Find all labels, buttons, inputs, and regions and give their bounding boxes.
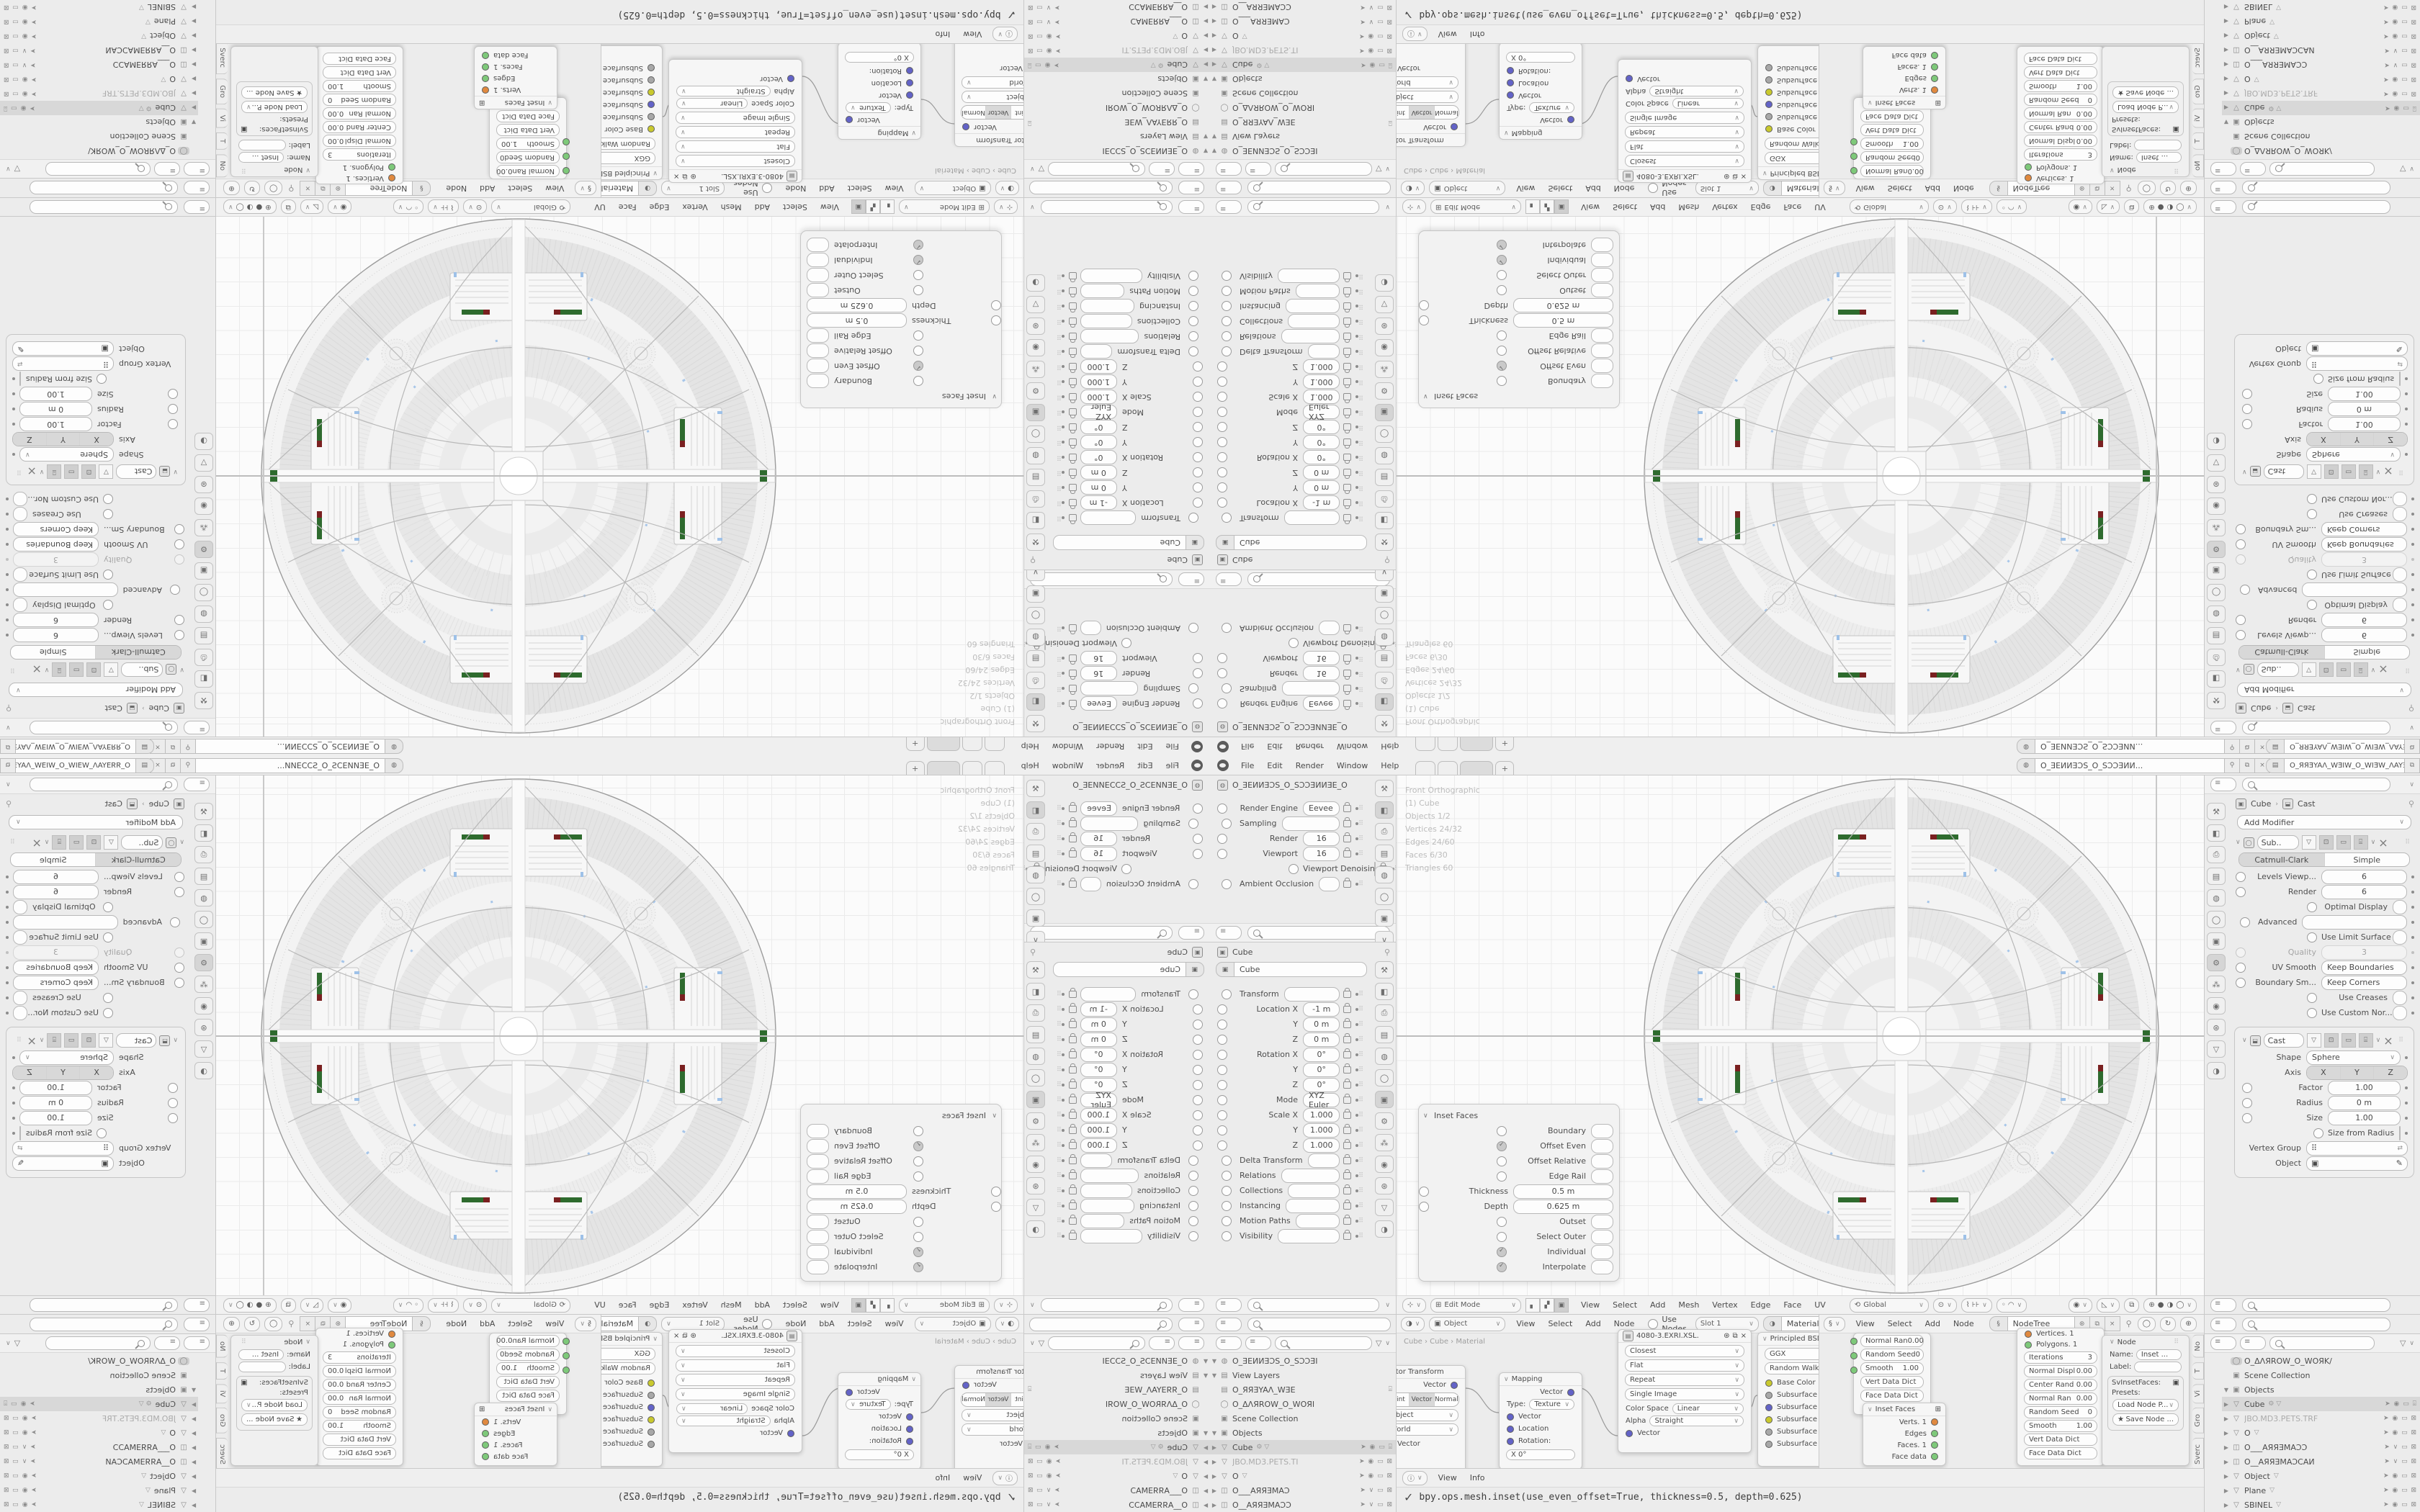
- modifier-name-field[interactable]: Cast: [116, 464, 156, 479]
- datablock-name[interactable]: Cube: [156, 1400, 176, 1409]
- outliner-row[interactable]: ▼ ▣ Objects: [0, 115, 198, 130]
- node-title[interactable]: ∨Inset Faces⊞: [1863, 96, 1945, 109]
- properties-tab-icon[interactable]: ◯: [1375, 426, 1394, 443]
- vector-transform-node[interactable]: Vector Transform Vector PointVectorNorma…: [1397, 44, 1466, 147]
- expand-caret-icon[interactable]: ▶: [189, 19, 198, 25]
- anim-dot-icon[interactable]: [1062, 290, 1065, 293]
- anim-dot-icon[interactable]: [1062, 1220, 1065, 1223]
- scene-filter-icon[interactable]: [1149, 1336, 1175, 1350]
- anim-dot-icon[interactable]: [6, 498, 9, 501]
- viewport-menu-item[interactable]: UV: [588, 202, 612, 212]
- expand-caret-icon[interactable]: ▶: [189, 48, 198, 54]
- topbar-menu-item[interactable]: Window: [1330, 761, 1374, 770]
- datablock-name[interactable]: O_ΔΛЯROW_O_WOЯK/: [2244, 147, 2332, 156]
- realtime-display-icon[interactable]: ▭: [2341, 464, 2356, 479]
- pin-icon[interactable]: ⚲: [2126, 184, 2132, 193]
- property-value[interactable]: 16: [1080, 847, 1117, 861]
- option-value[interactable]: [1591, 374, 1613, 389]
- sidebar-tab[interactable]: Sverc: [216, 44, 228, 74]
- property-row[interactable]: Z 0 m ⠿: [1054, 1032, 1210, 1046]
- axis-toggle-button[interactable]: Y: [2341, 433, 2375, 446]
- outliner-row[interactable]: ▶ ▽ JBO.MD3.PETS.TI ➤ ◉ ▭ ⊠: [1210, 1454, 1396, 1469]
- properties-tab-icon[interactable]: ⚙: [1375, 1112, 1394, 1130]
- visibility-icons[interactable]: ➤ ◉ ▭ ⊠: [1359, 1458, 1393, 1465]
- outliner-row[interactable]: ▼ ▣ Objects: [1210, 1426, 1396, 1440]
- vertex-group-field[interactable]: ⠿⇄: [12, 1141, 114, 1156]
- realtime-display-icon[interactable]: ▭: [64, 464, 79, 479]
- expand-caret-icon[interactable]: ▶: [189, 62, 198, 68]
- property-value[interactable]: [13, 991, 27, 1005]
- datablock-name[interactable]: SBINEL: [2244, 1500, 2272, 1510]
- cage-display-icon[interactable]: ⊡: [86, 835, 101, 850]
- lock-icon[interactable]: [1343, 701, 1351, 708]
- outliner-row[interactable]: ▼ ▤ View Layers: [1210, 1368, 1396, 1382]
- datablock-name[interactable]: Scene Collection: [110, 1371, 176, 1380]
- property-value[interactable]: [1319, 877, 1340, 891]
- socket-icon[interactable]: [482, 63, 489, 71]
- sidebar-tab[interactable]: Vi: [216, 1384, 228, 1403]
- principled-bsdf-node[interactable]: ∨Principled BSDF GGX Random Walk Base Co…: [601, 45, 663, 180]
- orientation-dropdown[interactable]: ⟲ Global ∨: [491, 1298, 570, 1313]
- properties-tab-icon[interactable]: ⎙: [1026, 823, 1045, 840]
- property-row[interactable]: Size from Radius: [12, 1126, 185, 1140]
- anim-dot-icon[interactable]: [1062, 883, 1065, 886]
- search-input[interactable]: [1247, 181, 1391, 195]
- sverchok-menu-item[interactable]: View: [1850, 1319, 1881, 1328]
- property-value[interactable]: 0°: [1080, 451, 1117, 465]
- node-param-field[interactable]: Vert Data Dict: [496, 1376, 560, 1388]
- lock-icon[interactable]: [1343, 1021, 1351, 1028]
- chevron-down-icon[interactable]: ∨: [6, 781, 11, 788]
- anim-dot-icon[interactable]: [2411, 1012, 2414, 1014]
- sidebar-tab[interactable]: Sverc: [2192, 44, 2204, 74]
- expand-caret-icon[interactable]: ▼: [1201, 76, 1210, 83]
- visibility-icons[interactable]: ⌻: [1027, 119, 1031, 126]
- subdivision-type-tab[interactable]: Catmull-Clark: [2239, 853, 2325, 866]
- datablock-name[interactable]: Objects: [2244, 118, 2275, 127]
- datablock-name[interactable]: Cube: [2244, 104, 2264, 113]
- property-value[interactable]: [1288, 315, 1340, 329]
- property-row[interactable]: Use Custom Nor...: [2228, 492, 2414, 506]
- sverchok-menu-item[interactable]: Node: [439, 184, 473, 193]
- sverchok-param-node[interactable]: Normal Ran0.00Random Seed0Smooth1.00Vert…: [489, 97, 567, 179]
- property-row[interactable]: Boundary Sm... Keep Corners: [6, 523, 192, 536]
- lock-icon[interactable]: [1343, 1172, 1351, 1179]
- visibility-icons[interactable]: ➤ ◉ ▭ ⌻: [1361, 1444, 1393, 1451]
- anim-dot-icon[interactable]: [6, 906, 9, 909]
- add-workspace-button[interactable]: +: [906, 761, 925, 775]
- breadcrumb-object[interactable]: Cube: [2251, 799, 2271, 809]
- visibility-icons[interactable]: ➤ ◉ ▭ ⊠: [2383, 32, 2417, 40]
- operator-option-row[interactable]: Outset: [807, 284, 1001, 297]
- expand-caret-icon[interactable]: ▶: [2222, 1401, 2231, 1408]
- lock-icon[interactable]: [1343, 500, 1351, 507]
- property-row[interactable]: Collections ⠿: [1210, 1184, 1366, 1197]
- image-texture-node[interactable]: ▤ 4080-3.EXRI.XSL. ⊛ ⧉ × Closest∨Flat∨Re…: [668, 59, 802, 183]
- display-mode-icon[interactable]: [184, 162, 210, 176]
- property-row[interactable]: Y 0 m ⠿: [1210, 1017, 1366, 1031]
- socket-icon[interactable]: [1765, 1441, 1773, 1448]
- expand-caret-icon[interactable]: ▼: [1210, 1430, 1219, 1436]
- operator-option-row[interactable]: Offset Even: [807, 359, 1001, 373]
- visibility-icons[interactable]: ➤ ◉ ▭ ⊠: [1359, 1472, 1393, 1480]
- properties-tab-icon[interactable]: ▤: [1375, 469, 1394, 486]
- visibility-icons[interactable]: ➤ ◉ ▭ ⊠: [1359, 47, 1393, 54]
- filter-toggle-icon[interactable]: [184, 778, 210, 791]
- viewport-menu-item[interactable]: Add: [1644, 1300, 1672, 1310]
- outliner-row[interactable]: ◯ O_ΔΛЯROW_O_WOЯK/: [0, 144, 198, 158]
- lock-icon[interactable]: [1343, 625, 1351, 632]
- properties-tab-icon[interactable]: ⚙: [194, 954, 213, 971]
- visibility-icons[interactable]: ➤ ◉ ▭ ⊠: [3, 1415, 37, 1422]
- type-dropdown[interactable]: Texture∨: [1529, 102, 1574, 113]
- properties-tab-icon[interactable]: ◯: [2207, 911, 2226, 928]
- property-value[interactable]: 0 m: [1080, 466, 1117, 480]
- filter-toggle-icon[interactable]: [1216, 1318, 1242, 1331]
- properties-tab-icon[interactable]: ◧: [1026, 512, 1045, 529]
- sverchok-inset-faces-node[interactable]: ∨Inset Faces⊞ Verts. 1 Edges Faces. 1 Fa…: [474, 1403, 557, 1466]
- socket-icon[interactable]: [1507, 68, 1514, 75]
- anim-dot-icon[interactable]: [6, 921, 9, 924]
- property-value[interactable]: Keep Boundaries: [13, 960, 99, 975]
- pin-icon[interactable]: ⚲: [1384, 555, 1390, 564]
- save-preset-button[interactable]: ★Save Node ...: [2112, 86, 2179, 99]
- property-value[interactable]: 1.000: [1303, 1123, 1340, 1138]
- properties-tab-icon[interactable]: ◉: [2207, 997, 2226, 1014]
- axis-toggle-button[interactable]: Z: [2374, 1066, 2407, 1079]
- expand-caret-icon[interactable]: ▶: [1210, 19, 1219, 25]
- pin-icon[interactable]: ⚲: [180, 758, 195, 773]
- display-mode-icon[interactable]: [1178, 162, 1204, 176]
- filter-toggle-icon[interactable]: [2210, 200, 2236, 214]
- object-name-field[interactable]: Cube: [1234, 535, 1367, 550]
- scene-selector[interactable]: ◍ O_ƎEИИƎƆS_O_SƆƆƎИИ... ⚲ ⧉ ×: [2017, 740, 2270, 754]
- sverchok-menu-item[interactable]: View: [539, 184, 570, 193]
- socket-icon[interactable]: [1765, 1428, 1773, 1436]
- visibility-icons[interactable]: ➤ ◉ ▭ ⊠: [1027, 47, 1061, 54]
- operator-option-row[interactable]: Depth 0.625 m: [807, 1200, 1001, 1213]
- outliner-row[interactable]: ◯ O_ΔΛЯROW_O_WOЯI: [1210, 101, 1396, 115]
- properties-tab-icon[interactable]: ▣: [1026, 404, 1045, 421]
- node-param-field[interactable]: Face Data Dict: [323, 53, 396, 65]
- search-input[interactable]: [2242, 181, 2390, 195]
- properties-tab-icon[interactable]: ⚒: [1375, 780, 1394, 797]
- property-value[interactable]: [1080, 621, 1101, 636]
- anim-dot-icon[interactable]: [12, 423, 15, 426]
- property-row[interactable]: Mode XYZ Euler ⠿: [1054, 405, 1210, 419]
- datablock-name[interactable]: View Layers: [1140, 132, 1188, 142]
- node-param-field[interactable]: Iterations3: [323, 148, 396, 161]
- sverchok-menu-item[interactable]: View: [539, 1319, 570, 1328]
- operator-option-row[interactable]: Edge Rail: [807, 329, 1001, 343]
- blender-logo-icon[interactable]: [1217, 760, 1229, 771]
- lock-icon[interactable]: [1069, 1097, 1077, 1104]
- lock-icon[interactable]: [1069, 655, 1077, 662]
- viewport-menu-item[interactable]: Edge: [643, 1300, 676, 1310]
- modifier-name-field[interactable]: Cast: [116, 1033, 156, 1048]
- lock-icon[interactable]: [1343, 485, 1351, 492]
- node-title[interactable]: ∨Inset Faces⊞: [1863, 1403, 1945, 1416]
- expand-caret-icon[interactable]: ▶: [2222, 1430, 2231, 1436]
- datablock-name[interactable]: O_ΔΛЯROW_O_WOЯK/: [88, 1356, 176, 1366]
- visibility-icons[interactable]: ➤ ◉ ▭ ⊠: [2383, 90, 2417, 97]
- operator-option-row[interactable]: Thickness 0.5 m: [807, 1184, 1001, 1198]
- fake-user-icon[interactable]: ⊛: [691, 172, 696, 180]
- property-value[interactable]: 0 m: [1080, 481, 1117, 495]
- expand-caret-icon[interactable]: ▶: [2222, 62, 2231, 68]
- render-display-icon[interactable]: ⌻: [2354, 662, 2368, 677]
- property-value[interactable]: [19, 1126, 21, 1140]
- property-value[interactable]: XYZ Euler: [1080, 1093, 1117, 1107]
- properties-tab-icon[interactable]: ◍: [1026, 866, 1045, 883]
- anim-dot-icon[interactable]: [6, 619, 9, 622]
- outliner-row[interactable]: ▣ Scene Collection: [2222, 130, 2420, 144]
- anim-dot-icon[interactable]: [2411, 559, 2414, 562]
- lock-icon[interactable]: [1069, 701, 1077, 708]
- overlay-toggle-icon[interactable]: ⊕: [223, 181, 239, 196]
- anim-dot-icon[interactable]: [2405, 408, 2408, 411]
- copy-icon[interactable]: ⧉: [0, 739, 15, 755]
- socket-icon[interactable]: [2025, 1341, 2032, 1349]
- anim-dot-icon[interactable]: [1062, 351, 1065, 354]
- close-icon[interactable]: ×: [32, 663, 41, 677]
- shading-mode-buttons[interactable]: ⊕●◑◯ ∨: [2143, 200, 2197, 215]
- property-value[interactable]: [1284, 987, 1340, 1002]
- operator-option-row[interactable]: Individual: [1419, 1245, 1613, 1259]
- properties-tab-icon[interactable]: ◍: [1026, 629, 1045, 646]
- sverchok-menu-item[interactable]: Select: [501, 184, 539, 193]
- segment-option[interactable]: Normal: [1435, 106, 1458, 119]
- outliner-row[interactable]: ▼ ◍ O_ƎEИИƎƆS_O_SƆƆƎI: [1024, 144, 1210, 158]
- property-row[interactable]: Sampling ⠿: [1210, 682, 1366, 696]
- property-value[interactable]: 0°: [1303, 1048, 1340, 1062]
- option-value[interactable]: 0.625 m: [807, 1200, 907, 1214]
- properties-tab-icon[interactable]: ▽: [1375, 1199, 1394, 1216]
- outliner-row[interactable]: ▶ ▽ O ▽ ➤ ◉ ▭ ⊠: [0, 72, 198, 86]
- properties-tab-icon[interactable]: ◍: [1375, 1048, 1394, 1065]
- node-title[interactable]: ∨Mapping: [1500, 1373, 1582, 1386]
- filter-funnel-icon[interactable]: ▽: [14, 164, 20, 174]
- properties-tab-icon[interactable]: ⎙: [194, 649, 213, 666]
- socket-icon[interactable]: [647, 102, 655, 109]
- operator-option-row[interactable]: Offset Relative: [1419, 1154, 1613, 1168]
- property-row[interactable]: Optimal Display: [6, 900, 192, 914]
- operator-option-row[interactable]: Depth 0.625 m: [1419, 1200, 1613, 1213]
- node-panel-title[interactable]: ∨Node⠿: [2102, 163, 2189, 176]
- property-value[interactable]: 0°: [1303, 420, 1340, 435]
- visibility-icons[interactable]: ➤ ∨ ▭ ⊠: [3, 47, 36, 54]
- display-mode-icon[interactable]: [1178, 1336, 1204, 1350]
- socket-icon[interactable]: [388, 1341, 395, 1349]
- socket-icon[interactable]: [647, 1392, 655, 1399]
- property-row[interactable]: Visibility ⠿: [1054, 269, 1210, 283]
- property-value[interactable]: 0 m: [1303, 1017, 1340, 1032]
- socket-icon[interactable]: [1765, 77, 1773, 84]
- vector-transform-node[interactable]: Vector Transform Vector PointVectorNorma…: [1397, 1365, 1466, 1468]
- outliner-row[interactable]: ▶ ◫ O___AЯЯƎMAƆƆ ➤ ∨ ▭ ⊠: [2222, 58, 2420, 72]
- outliner-row[interactable]: ▼ ▣ Objects: [1024, 72, 1210, 86]
- socket-icon[interactable]: [482, 1453, 489, 1460]
- orientation-dropdown[interactable]: ⟲ Global ∨: [1850, 1298, 1929, 1313]
- anim-dot-icon[interactable]: [1062, 396, 1065, 399]
- properties-tab-icon[interactable]: ◯: [2207, 584, 2226, 601]
- workspace-tab[interactable]: [962, 737, 982, 751]
- filter-toggle-icon[interactable]: [1178, 1318, 1204, 1331]
- segment-option[interactable]: Point: [1397, 1393, 1410, 1406]
- node-title[interactable]: ∨Principled BSDF: [1758, 166, 1819, 179]
- object-field[interactable]: ▣✎: [2306, 342, 2408, 356]
- load-preset-button[interactable]: Load Node P...∨: [2112, 1399, 2179, 1411]
- properties-tab-icon[interactable]: ⚒: [194, 692, 213, 709]
- node-param-field[interactable]: Smooth1.00: [496, 1362, 560, 1374]
- workspace-tab-active[interactable]: [927, 737, 960, 751]
- datablock-name[interactable]: O: [169, 75, 176, 84]
- property-value[interactable]: Keep Corners: [2321, 523, 2407, 537]
- outliner-row[interactable]: ▶ ▽ JBO.MD3.PETS.TI ➤ ◉ ▭ ⊠: [1024, 1454, 1210, 1469]
- pin-icon[interactable]: ⚲: [180, 739, 195, 755]
- lock-icon[interactable]: [1343, 685, 1351, 693]
- property-value[interactable]: [1080, 1229, 1142, 1243]
- editor-type-icon[interactable]: ⊹ ∨: [1402, 200, 1426, 215]
- property-row[interactable]: Advanced: [6, 583, 192, 597]
- property-value[interactable]: [1080, 269, 1142, 284]
- visibility-icons[interactable]: ➤ ◉ ▭ ⊠: [3, 1429, 37, 1436]
- property-value[interactable]: [2393, 900, 2407, 914]
- datablock-name[interactable]: Scene Collection: [1122, 89, 1188, 99]
- viewport-menu-item[interactable]: Add: [748, 202, 776, 212]
- blender-logo-icon[interactable]: [1191, 760, 1203, 771]
- search-input[interactable]: [1247, 1318, 1391, 1331]
- lock-icon[interactable]: [1343, 655, 1351, 662]
- property-value[interactable]: [1282, 816, 1340, 831]
- image-texture-node[interactable]: ▤ 4080-3.EXRI.XSL. ⊛ ⧉ × Closest∨Flat∨Re…: [668, 1329, 802, 1453]
- datablock-name[interactable]: O_ƎEИИƎƆS_O_SƆƆƎI: [1232, 147, 1318, 156]
- properties-tab-icon[interactable]: ∨: [1375, 931, 1394, 942]
- expand-caret-icon[interactable]: ▶: [189, 105, 198, 112]
- principled-bsdf-node[interactable]: ∨Principled BSDF GGX Random Walk Base Co…: [1757, 45, 1819, 180]
- scene-name[interactable]: O_ƎEИИƎƆS_O_SƆƆƎИИ...: [2035, 739, 2225, 755]
- node-title[interactable]: Vector Transform: [1397, 1366, 1465, 1379]
- property-row[interactable]: Render 16 ⠿: [1054, 667, 1210, 680]
- sidebar-tab[interactable]: No: [216, 1335, 228, 1358]
- property-row[interactable]: Rotation X 0° ⠿: [1210, 451, 1366, 464]
- anim-dot-icon[interactable]: [1062, 336, 1065, 338]
- property-row[interactable]: Optimal Display: [6, 598, 192, 612]
- datablock-name[interactable]: Objects: [1157, 1428, 1188, 1438]
- datablock-name[interactable]: JBO.MD3.PETS.TI: [1232, 1457, 1299, 1467]
- node-name-field[interactable]: Inset ...: [2136, 152, 2182, 163]
- vertex-select-icon[interactable]: ▖: [1525, 1298, 1540, 1313]
- outliner-row[interactable]: ▶ ▽ Cube ⚙ ▽ ➤ ◉ ▭ ⌻: [2222, 101, 2420, 115]
- datablock-name[interactable]: O_ƎEИИƎƆS_O_SƆƆƎI: [1232, 1356, 1318, 1366]
- visibility-icons[interactable]: ➤ ◉ ▭ ⌻: [1361, 61, 1393, 68]
- search-input[interactable]: [1247, 572, 1390, 586]
- expand-caret-icon[interactable]: ▶: [189, 4, 198, 11]
- anim-dot-icon[interactable]: [1062, 1008, 1065, 1011]
- lock-icon[interactable]: [1343, 670, 1351, 678]
- properties-tab-icon[interactable]: ⎙: [194, 846, 213, 863]
- viewport-3d[interactable]: Front Orthographic(1) CubeObjects 1/2Ver…: [216, 775, 1023, 1314]
- properties-tab-icon[interactable]: ◧: [2207, 670, 2226, 688]
- close-icon[interactable]: ×: [27, 465, 36, 479]
- socket-icon[interactable]: [482, 1441, 489, 1449]
- node-param-field[interactable]: Iterations3: [323, 1351, 396, 1364]
- datablock-name[interactable]: O___AЯЯƎMAƆ: [1232, 17, 1290, 27]
- type-dropdown[interactable]: Texture∨: [846, 102, 891, 113]
- socket-icon[interactable]: [1850, 1338, 1857, 1345]
- sidebar-tab[interactable]: Vi: [216, 109, 228, 128]
- option-value[interactable]: [807, 269, 829, 283]
- property-row[interactable]: Use Creases: [2228, 508, 2414, 521]
- modifier-name-field[interactable]: Cast: [2264, 1033, 2304, 1048]
- socket-icon[interactable]: [1507, 1438, 1514, 1445]
- outliner-row[interactable]: ▶ ◫ O__AЯЯƎMAƆƆ ➤ ∨ ▭ ⊠: [1210, 0, 1396, 14]
- node-param-field[interactable]: Vert Data Dict: [496, 124, 560, 136]
- properties-tab-icon[interactable]: ⊛: [1026, 318, 1045, 335]
- anim-dot-icon[interactable]: [2411, 589, 2414, 592]
- shading-mode-buttons[interactable]: ⊕●◑◯ ∨: [223, 1298, 277, 1313]
- anim-dot-icon[interactable]: [6, 966, 9, 969]
- datablock-name[interactable]: Scene Collection: [110, 132, 176, 142]
- inset-faces-panel[interactable]: ∨ Inset Faces Boundary Offset Even: [1418, 1104, 1620, 1282]
- option-value[interactable]: [1591, 269, 1613, 283]
- cage-display-icon[interactable]: ⊡: [81, 1033, 96, 1048]
- anim-dot-icon[interactable]: [2405, 423, 2408, 426]
- property-row[interactable]: Motion Paths ⠿: [1210, 284, 1366, 298]
- node-title[interactable]: Vector Transform: [955, 133, 1023, 146]
- properties-tab-icon[interactable]: ⎙: [2207, 846, 2226, 863]
- fake-user-icon[interactable]: ⊛: [1724, 1332, 1729, 1340]
- vertex-select-icon[interactable]: ▖: [880, 200, 895, 215]
- info-menu-item[interactable]: Info: [1464, 30, 1492, 39]
- topbar-menu-item[interactable]: Edit: [1131, 761, 1159, 770]
- properties-tab-icon[interactable]: ▤: [1375, 845, 1394, 862]
- lock-icon[interactable]: [1343, 1157, 1351, 1164]
- load-preset-button[interactable]: Load Node P...∨: [241, 1399, 308, 1411]
- property-value[interactable]: [1286, 300, 1340, 314]
- outliner-row[interactable]: ▶ ▽ Plane ▽ ➤ ◉ ▭ ⊠: [2222, 14, 2420, 29]
- anim-dot-icon[interactable]: [1062, 1235, 1065, 1238]
- expand-caret-icon[interactable]: ▶: [1210, 62, 1219, 68]
- expand-caret-icon[interactable]: ▶: [2222, 19, 2231, 25]
- visibility-icons[interactable]: ➤ ◉ ▭ ⊠: [3, 18, 37, 25]
- display-mode-icon[interactable]: [1216, 1336, 1242, 1350]
- option-value[interactable]: [807, 344, 829, 359]
- edit-mode-display-icon[interactable]: ▽: [104, 835, 118, 850]
- display-mode-icon[interactable]: [2210, 1336, 2236, 1350]
- property-value[interactable]: 0 m: [1303, 466, 1340, 480]
- datablock-name[interactable]: O___AЯЯƎMAƆ: [1130, 17, 1188, 27]
- visibility-icons[interactable]: ⌻: [1027, 1386, 1031, 1393]
- view-layer-name[interactable]: O_ЯЯƎYAΛ_WƎIW_O_WIƎW_ΛAYƎЯR_O: [2285, 739, 2405, 755]
- datablock-name[interactable]: O: [2244, 1428, 2251, 1438]
- properties-tab-icon[interactable]: ▤: [1026, 650, 1045, 667]
- node-param-field[interactable]: Normal Ran0.00: [2024, 1392, 2097, 1405]
- sss-method-dropdown[interactable]: Random Walk: [601, 138, 655, 150]
- socket-icon[interactable]: [1765, 65, 1773, 72]
- lock-icon[interactable]: [1343, 379, 1351, 386]
- datablock-name[interactable]: JBO.MD3.PETS.TI: [1232, 46, 1299, 55]
- close-icon[interactable]: ×: [2378, 663, 2388, 677]
- properties-tab-icon[interactable]: ▽: [1375, 296, 1394, 313]
- lock-icon[interactable]: [1069, 1142, 1077, 1149]
- snap-target-icon[interactable]: ⊙ ∨: [1933, 1298, 1957, 1313]
- socket-icon[interactable]: [1765, 1380, 1773, 1387]
- panel-title-row[interactable]: ∨ Inset Faces: [801, 1109, 1001, 1122]
- edit-mode-display-icon[interactable]: ▽: [2302, 662, 2316, 677]
- convert-from-dropdown[interactable]: Object∨: [1397, 91, 1458, 103]
- add-modifier-button[interactable]: Add Modifier∨: [9, 815, 183, 829]
